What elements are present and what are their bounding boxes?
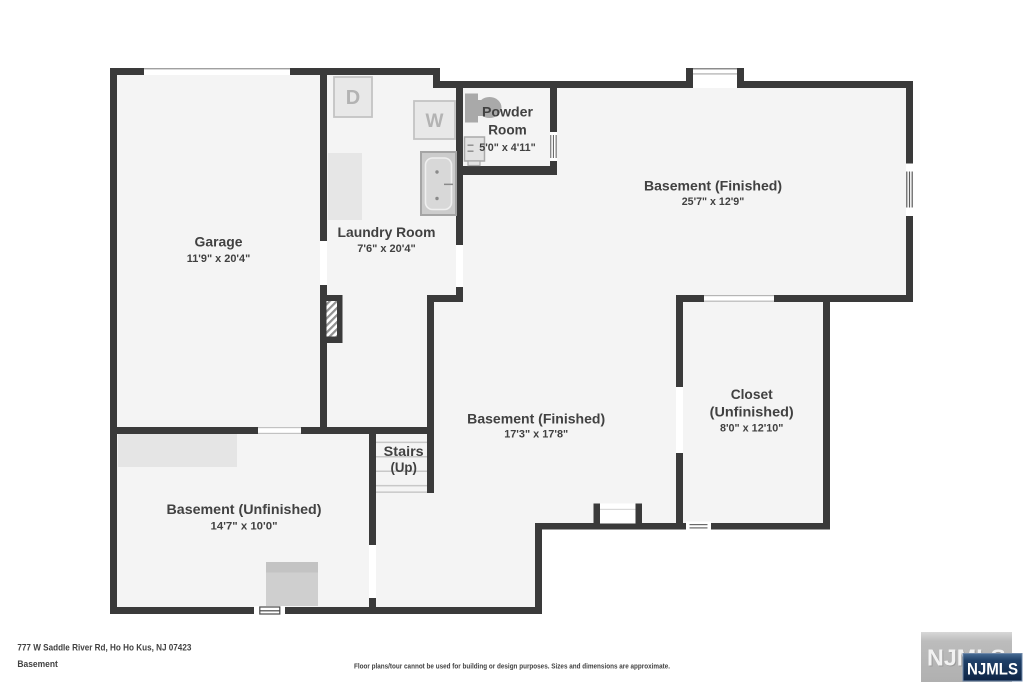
svg-text:Basement (Unfinished): Basement (Unfinished) [167,501,322,517]
svg-text:Laundry Room: Laundry Room [338,224,436,240]
svg-text:777 W Saddle River Rd, Ho Ho K: 777 W Saddle River Rd, Ho Ho Kus, NJ 074… [17,642,191,652]
svg-text:Closet: Closet [731,386,773,402]
svg-text:Garage: Garage [195,234,243,250]
svg-text:7'6" x 20'4": 7'6" x 20'4" [357,243,416,255]
svg-text:(Up): (Up) [390,459,417,475]
svg-text:Basement: Basement [17,659,58,669]
svg-text:17'3" x 17'8": 17'3" x 17'8" [504,428,568,440]
svg-text:D: D [346,87,360,109]
svg-text:11'9" x 20'4": 11'9" x 20'4" [187,253,251,265]
svg-text:25'7" x 12'9": 25'7" x 12'9" [682,196,745,208]
svg-text:8'0" x 12'10": 8'0" x 12'10" [720,422,784,434]
svg-text:Floor plans/tour cannot be use: Floor plans/tour cannot be used for buil… [354,664,670,671]
svg-text:Room: Room [488,122,527,138]
svg-text:Stairs: Stairs [384,443,424,459]
svg-text:W: W [426,111,444,132]
svg-text:Powder: Powder [482,104,534,120]
svg-text:NJMLS: NJMLS [967,660,1018,679]
svg-text:Basement (Finished): Basement (Finished) [644,178,782,194]
svg-text:5'0" x 4'11": 5'0" x 4'11" [479,142,536,154]
svg-text:14'7" x 10'0": 14'7" x 10'0" [211,521,278,533]
svg-text:Basement (Finished): Basement (Finished) [467,410,605,426]
svg-text:(Unfinished): (Unfinished) [710,403,794,419]
